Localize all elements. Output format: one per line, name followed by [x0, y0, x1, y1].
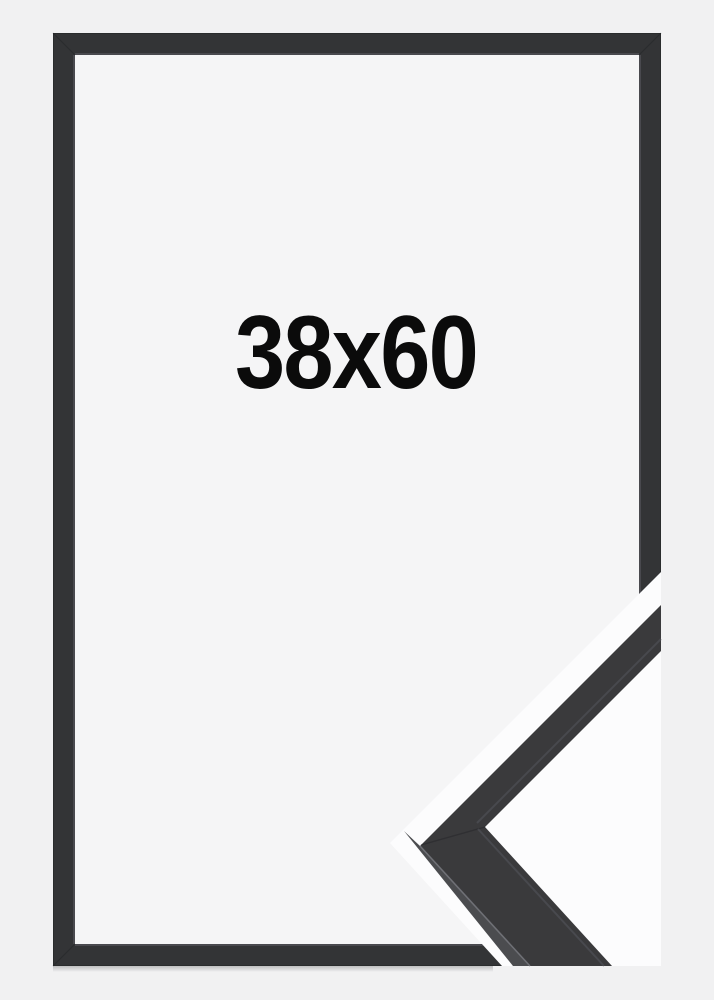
frame-drop-shadow: [53, 966, 493, 972]
product-image: 38x60: [0, 0, 714, 1000]
frame-border-left: [53, 33, 75, 966]
frame-border-top: [53, 33, 661, 55]
frame-product-graphic: 38x60: [0, 0, 714, 1000]
size-label: 38x60: [235, 295, 477, 411]
